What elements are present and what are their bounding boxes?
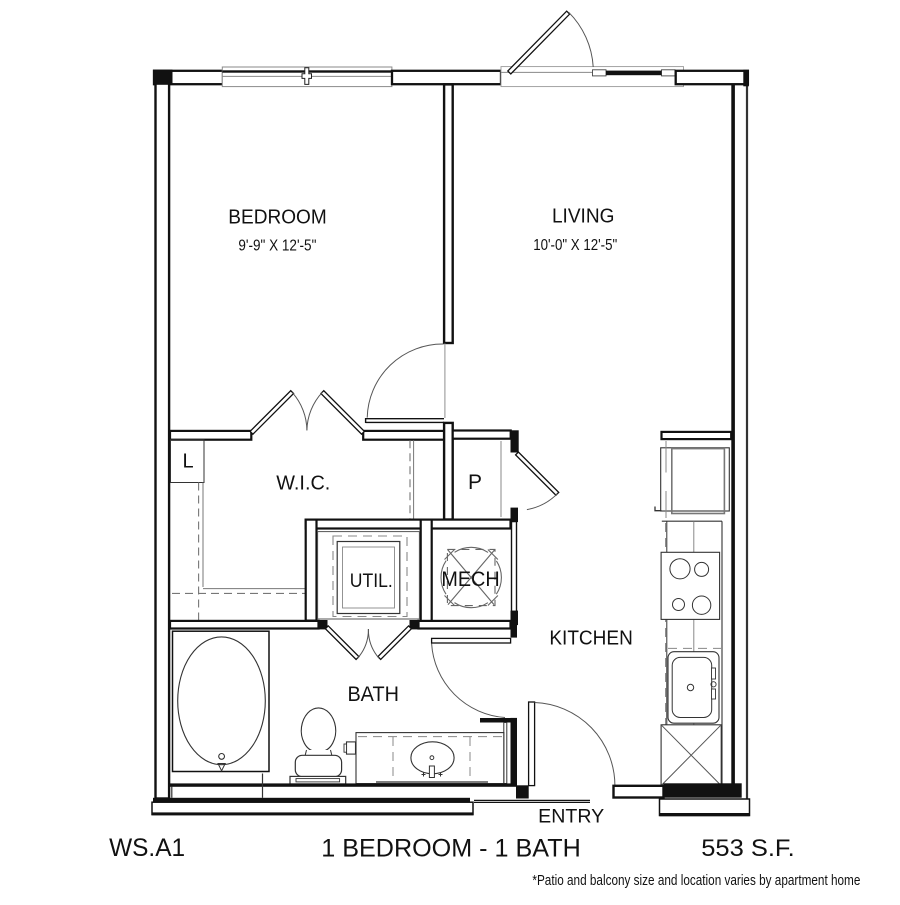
svg-text:WS.A1: WS.A1: [109, 834, 185, 862]
svg-text:BEDROOM: BEDROOM: [228, 205, 326, 228]
svg-text:L: L: [182, 450, 193, 472]
svg-text:P: P: [468, 471, 482, 494]
svg-text:UTIL.: UTIL.: [350, 570, 393, 592]
svg-text:W.I.C.: W.I.C.: [276, 471, 330, 494]
svg-text:MECH: MECH: [441, 568, 499, 591]
svg-text:KITCHEN: KITCHEN: [549, 627, 633, 649]
svg-text:*Patio and balcony size and lo: *Patio and balcony size and location var…: [532, 873, 860, 889]
svg-text:ENTRY: ENTRY: [538, 805, 604, 827]
svg-text:LIVING: LIVING: [552, 206, 615, 228]
svg-text:BATH: BATH: [347, 683, 399, 706]
svg-text:9'-9" X 12'-5": 9'-9" X 12'-5": [238, 238, 316, 255]
svg-text:553 S.F.: 553 S.F.: [701, 835, 795, 862]
svg-text:1 BEDROOM - 1 BATH: 1 BEDROOM - 1 BATH: [321, 835, 581, 863]
svg-text:10'-0" X 12'-5": 10'-0" X 12'-5": [533, 237, 617, 254]
